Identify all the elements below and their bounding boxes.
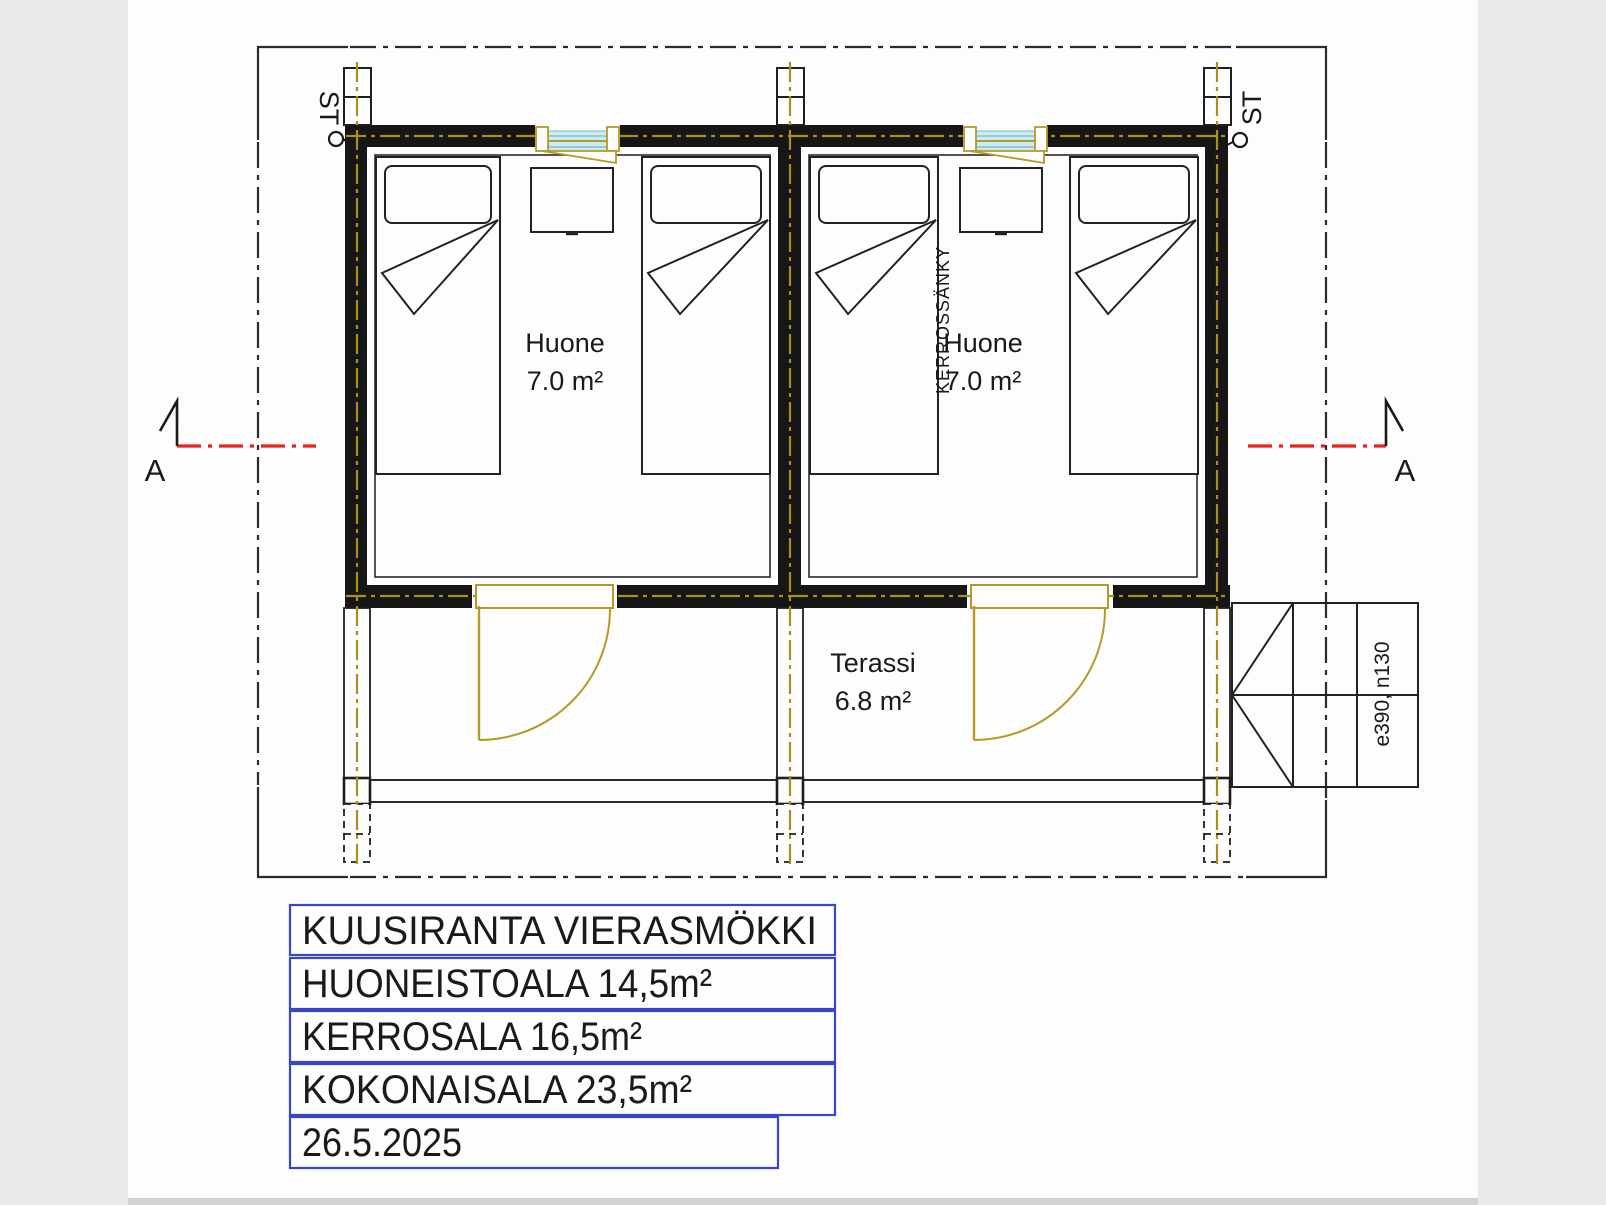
bunk-bed-label: KERROSSÄNKY [933, 246, 953, 394]
bed-2 [642, 157, 770, 474]
wall-left [345, 125, 367, 608]
room-2-area: 7.0 m² [945, 366, 1022, 396]
steps-dimension-label: e390, n130 [1371, 641, 1394, 746]
bed-4-pillow [1079, 166, 1189, 223]
bed-3 [810, 157, 938, 474]
bed-1-pillow [385, 166, 491, 223]
floor-plan-drawing: A A [0, 0, 1606, 1205]
terrace-name: Terassi [830, 648, 916, 678]
wall-middle [778, 125, 801, 608]
st-label-right: ST [1237, 91, 1267, 126]
title-block-project: KUUSIRANTA VIERASMÖKKI [302, 909, 817, 953]
bed-2-pillow [651, 166, 761, 223]
bed-4 [1070, 157, 1198, 474]
title-block-huoneistoala: HUONEISTOALA 14,5m² [302, 962, 712, 1006]
title-block-kokonaisala: KOKONAISALA 23,5m² [302, 1068, 692, 1112]
section-label-right: A [1395, 453, 1416, 488]
room-2-name: Huone [943, 328, 1023, 358]
room-1-area: 7.0 m² [527, 366, 604, 396]
section-label-left: A [145, 453, 166, 488]
terrace-area: 6.8 m² [835, 686, 912, 716]
st-label-left: ST [314, 91, 344, 126]
page-bottom-edge [128, 1198, 1478, 1205]
bed-3-pillow [819, 166, 929, 223]
floor-plan-page: A A [0, 0, 1606, 1205]
title-block: KUUSIRANTA VIERASMÖKKI HUONEISTOALA 14,5… [290, 905, 835, 1168]
nightstand-2 [960, 168, 1042, 234]
bed-1 [376, 157, 500, 474]
room-1-name: Huone [525, 328, 605, 358]
title-block-kerrosala: KERROSALA 16,5m² [302, 1015, 642, 1059]
title-block-date: 26.5.2025 [302, 1121, 462, 1165]
nightstand-1 [531, 168, 613, 234]
wall-right [1205, 125, 1228, 608]
